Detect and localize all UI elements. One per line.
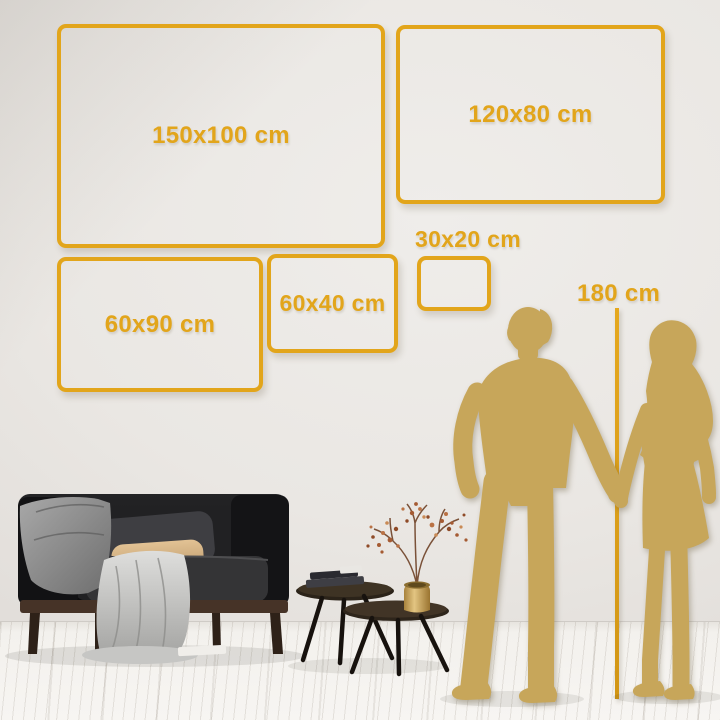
couple-silhouettes — [0, 0, 720, 720]
size-comparison-scene: 150x100 cm 120x80 cm 60x90 cm 60x40 cm 3… — [0, 0, 720, 720]
woman-silhouette — [614, 320, 716, 700]
man-silhouette — [452, 307, 626, 703]
